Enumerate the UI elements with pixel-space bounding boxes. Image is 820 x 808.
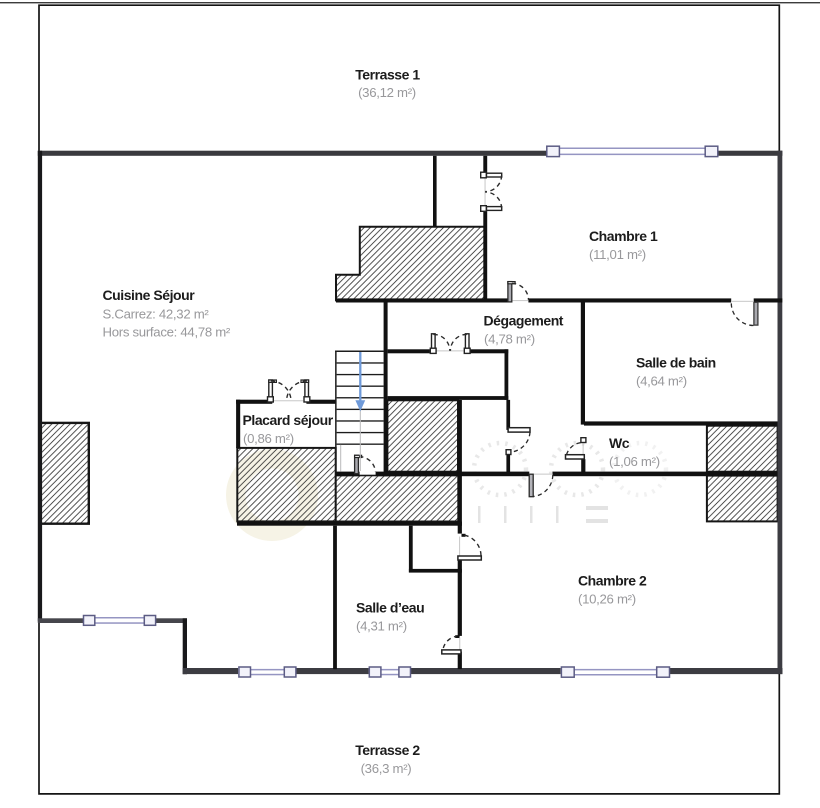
svg-text:(36,12 m²): (36,12 m²) — [358, 85, 416, 100]
svg-text:Terrasse 2: Terrasse 2 — [355, 742, 420, 758]
svg-text:(4,31 m²): (4,31 m²) — [356, 618, 407, 633]
svg-text:Terrasse 1: Terrasse 1 — [355, 66, 420, 82]
svg-text:Wc: Wc — [609, 435, 630, 451]
svg-text:Chambre 1: Chambre 1 — [589, 228, 658, 244]
svg-text:Chambre 2: Chambre 2 — [578, 572, 647, 588]
svg-text:Salle d’eau: Salle d’eau — [356, 599, 424, 615]
svg-text:Dégagement: Dégagement — [484, 313, 564, 329]
svg-text:(10,26 m²): (10,26 m²) — [578, 591, 636, 606]
svg-text:S.Carrez: 42,32 m²: S.Carrez: 42,32 m² — [103, 306, 210, 321]
svg-text:(36,3 m²): (36,3 m²) — [361, 761, 412, 776]
svg-text:Salle de bain: Salle de bain — [636, 355, 716, 371]
svg-text:(0,86 m²): (0,86 m²) — [243, 431, 294, 446]
svg-text:Placard séjour: Placard séjour — [243, 412, 334, 428]
svg-text:(4,78 m²): (4,78 m²) — [484, 331, 535, 346]
svg-text:Cuisine Séjour: Cuisine Séjour — [103, 287, 196, 303]
svg-text:(11,01 m²): (11,01 m²) — [589, 247, 646, 262]
svg-text:(4,64 m²): (4,64 m²) — [636, 374, 687, 389]
svg-text:Hors surface: 44,78 m²: Hors surface: 44,78 m² — [103, 325, 231, 340]
svg-text:(1,06 m²): (1,06 m²) — [609, 454, 660, 469]
